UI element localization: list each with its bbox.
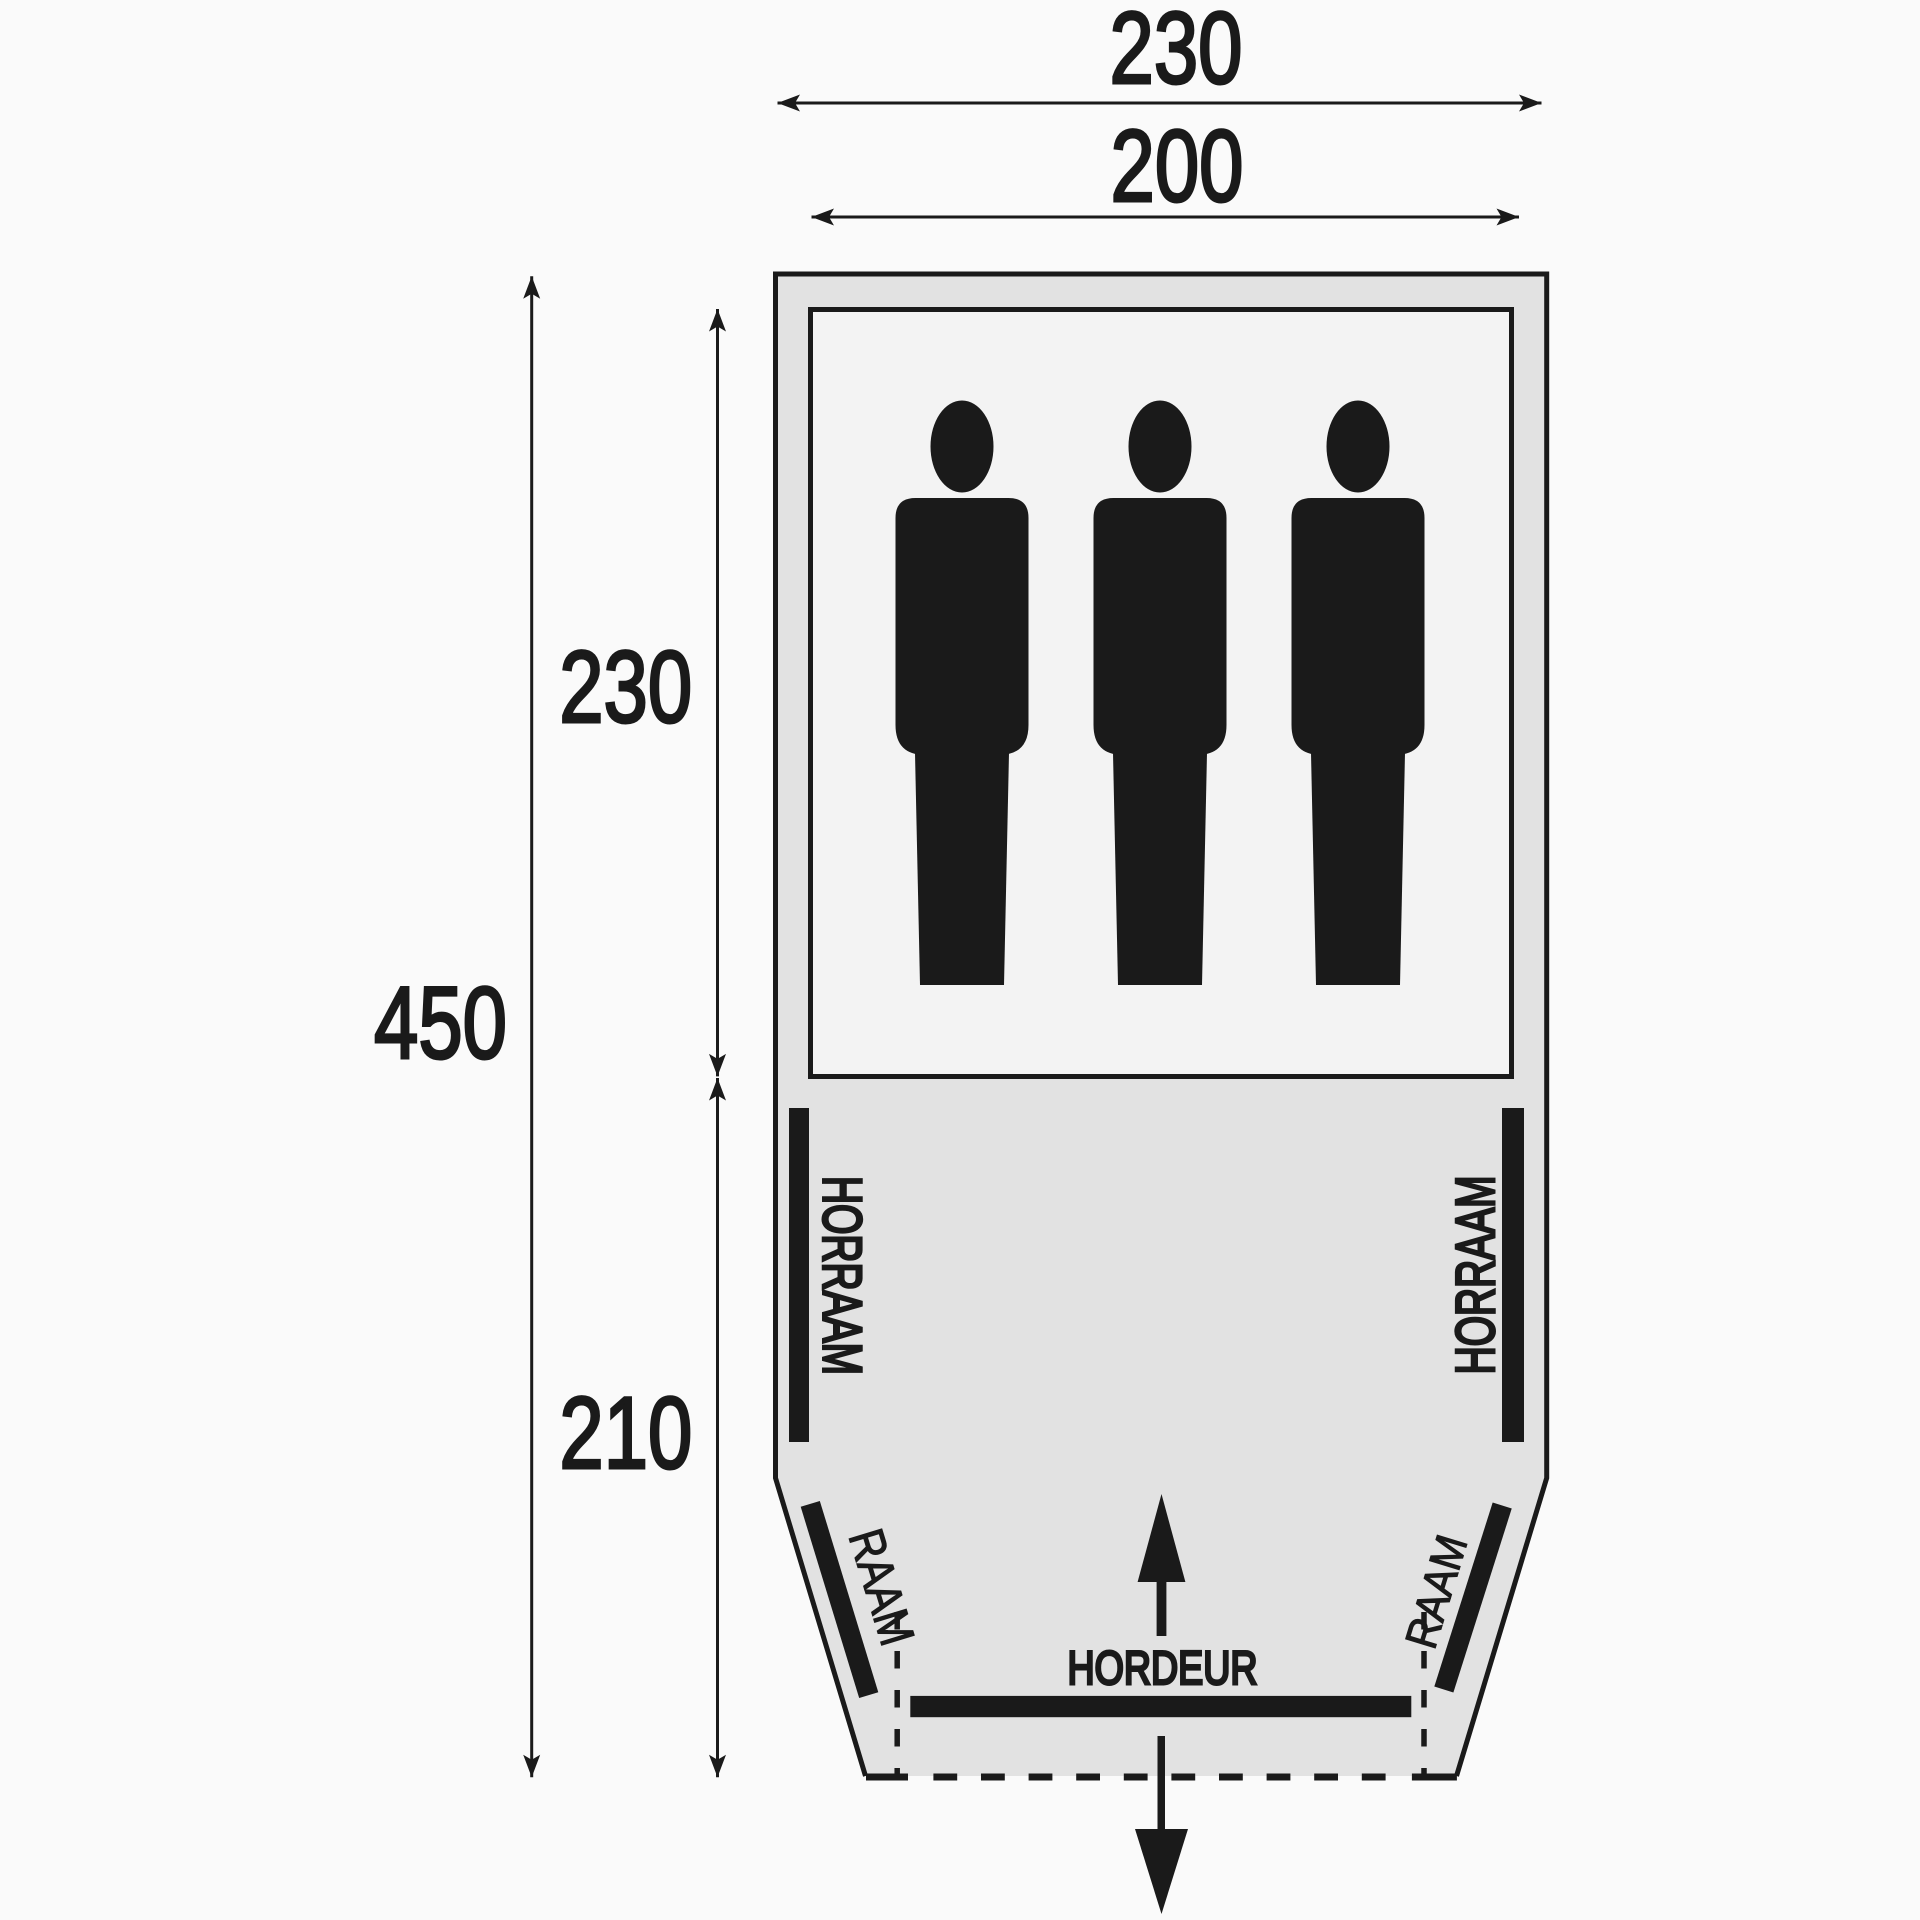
svg-text:210: 210	[559, 1376, 692, 1490]
svg-text:200: 200	[1111, 109, 1244, 223]
svg-text:HORDEUR: HORDEUR	[1068, 1642, 1258, 1695]
svg-text:230: 230	[1110, 0, 1243, 105]
svg-text:HORRAAM: HORRAAM	[1444, 1175, 1506, 1374]
svg-text:450: 450	[374, 966, 507, 1080]
svg-text:230: 230	[559, 630, 692, 744]
svg-text:HORRAAM: HORRAAM	[812, 1176, 874, 1375]
